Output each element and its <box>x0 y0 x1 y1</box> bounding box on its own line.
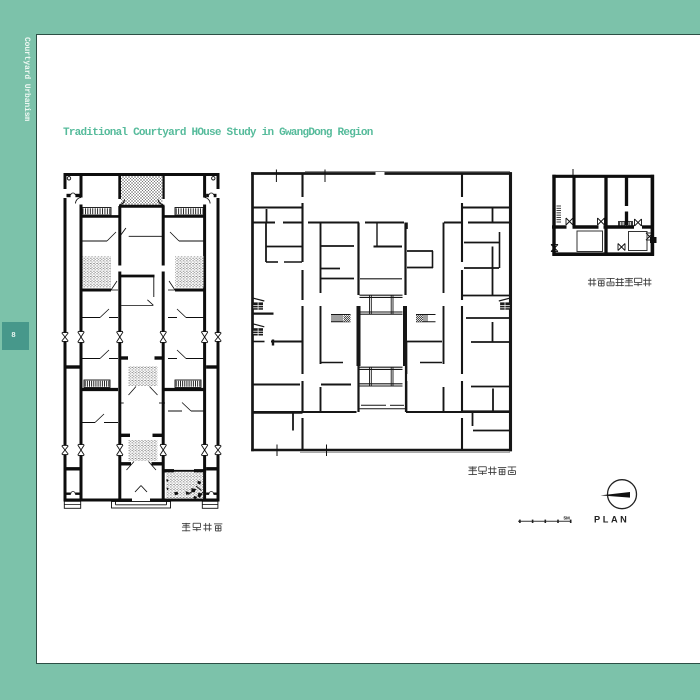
svg-text:PLAN: PLAN <box>594 515 629 525</box>
svg-text:5M: 5M <box>564 516 571 521</box>
